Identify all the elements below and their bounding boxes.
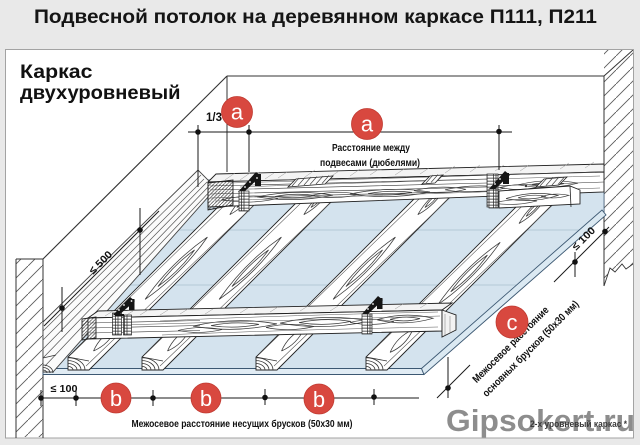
svg-text:≤ 100: ≤ 100 <box>51 383 78 395</box>
svg-text:Подвесной потолок на деревянно: Подвесной потолок на деревянном каркасе … <box>34 6 597 28</box>
svg-text:b: b <box>200 386 212 411</box>
svg-text:Межосевое расстояние несущих б: Межосевое расстояние несущих брусков (50… <box>132 418 353 430</box>
svg-text:b: b <box>110 386 122 411</box>
svg-text:Каркас: Каркас <box>20 61 93 83</box>
svg-text:1/3: 1/3 <box>206 112 222 124</box>
svg-text:a: a <box>231 100 244 125</box>
svg-text:c: c <box>507 310 518 335</box>
svg-text:a: a <box>361 112 374 137</box>
svg-text:b: b <box>313 387 325 412</box>
svg-text:2-х уровневый каркас *: 2-х уровневый каркас * <box>530 419 627 430</box>
svg-text:Расстояние между: Расстояние между <box>332 142 410 154</box>
svg-text:двухуровневый: двухуровневый <box>20 82 181 104</box>
svg-text:подвесами (дюбелями): подвесами (дюбелями) <box>320 157 420 169</box>
